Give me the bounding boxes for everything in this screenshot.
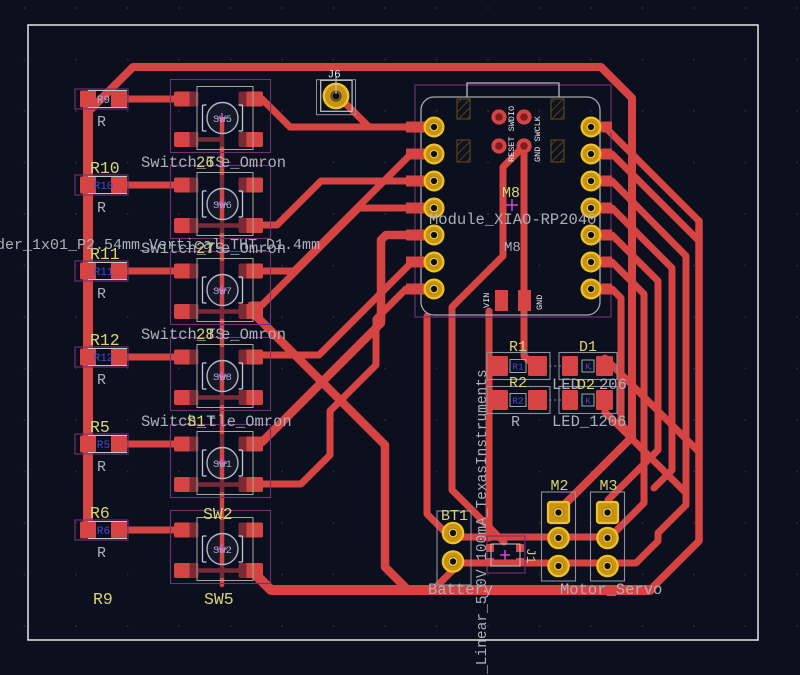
svg-text:R1: R1 xyxy=(512,362,524,373)
svg-text:28: 28 xyxy=(196,326,215,344)
svg-text:M8: M8 xyxy=(504,240,521,256)
svg-text:R9: R9 xyxy=(93,590,113,609)
svg-text:R10: R10 xyxy=(90,159,120,178)
svg-text:R5: R5 xyxy=(90,418,110,437)
svg-text:J1: J1 xyxy=(523,548,538,564)
svg-text:J6: J6 xyxy=(328,70,341,82)
svg-text:GND: GND xyxy=(535,295,545,310)
svg-text:R1: R1 xyxy=(509,339,527,356)
svg-text:LED: LED xyxy=(552,376,580,394)
svg-text:K: K xyxy=(585,396,591,407)
svg-text:SW2: SW2 xyxy=(213,545,232,557)
svg-text:RESET SWDIO: RESET SWDIO xyxy=(507,106,517,162)
svg-text:S1: S1 xyxy=(187,413,206,431)
svg-text:R11: R11 xyxy=(94,267,114,279)
svg-text:Motor_Servo: Motor_Servo xyxy=(560,581,662,599)
svg-text:M2: M2 xyxy=(551,478,569,495)
svg-text:VIN: VIN xyxy=(482,293,492,308)
svg-text:R: R xyxy=(97,372,106,389)
svg-text:R: R xyxy=(97,286,106,303)
svg-text:D1: D1 xyxy=(579,339,597,356)
svg-text:M3: M3 xyxy=(600,478,618,495)
svg-text:SW5: SW5 xyxy=(213,114,232,126)
svg-text:tor_Linear_5.0V_100mA_TexasIns: tor_Linear_5.0V_100mA_TexasInstruments xyxy=(475,369,491,675)
svg-text:M8: M8 xyxy=(502,185,520,202)
svg-text:206: 206 xyxy=(599,376,627,394)
svg-text:SW5: SW5 xyxy=(204,590,234,609)
svg-text:R12: R12 xyxy=(90,331,120,350)
svg-text:LED_1206: LED_1206 xyxy=(552,413,626,431)
svg-text:R: R xyxy=(97,545,106,562)
svg-text:tle_Omron: tle_Omron xyxy=(208,413,292,431)
svg-text:SW6: SW6 xyxy=(213,200,232,212)
svg-text:R: R xyxy=(97,459,106,476)
svg-text:R: R xyxy=(97,114,106,131)
svg-text:der_1x01_P2.54mm_Vertical_THT_: der_1x01_P2.54mm_Vertical_THT_D1.4mm xyxy=(0,237,320,254)
svg-text:R9: R9 xyxy=(97,95,110,107)
svg-text:R5: R5 xyxy=(97,440,110,452)
svg-text:Module_XIAO-RP2040: Module_XIAO-RP2040 xyxy=(429,211,596,229)
svg-text:26: 26 xyxy=(196,154,215,172)
svg-text:R6: R6 xyxy=(97,526,110,538)
svg-text:e_Omron: e_Omron xyxy=(221,326,286,344)
svg-text:SW2: SW2 xyxy=(203,505,233,524)
svg-text:R2: R2 xyxy=(512,396,524,407)
svg-text:R: R xyxy=(97,200,106,217)
svg-text:GND SWCLK: GND SWCLK xyxy=(533,115,543,162)
svg-text:SW8: SW8 xyxy=(213,372,232,384)
svg-text:R6: R6 xyxy=(90,504,110,523)
svg-text:D2: D2 xyxy=(577,377,595,394)
svg-text:R12: R12 xyxy=(94,353,114,365)
svg-text:R2: R2 xyxy=(509,375,527,392)
svg-text:K: K xyxy=(585,362,591,373)
svg-text:R: R xyxy=(511,414,520,431)
svg-text:SW1: SW1 xyxy=(213,459,232,471)
svg-text:SW7: SW7 xyxy=(213,286,232,298)
svg-text:R10: R10 xyxy=(94,181,114,193)
svg-text:BT1: BT1 xyxy=(441,508,468,525)
svg-text:e_Omron: e_Omron xyxy=(221,154,286,172)
